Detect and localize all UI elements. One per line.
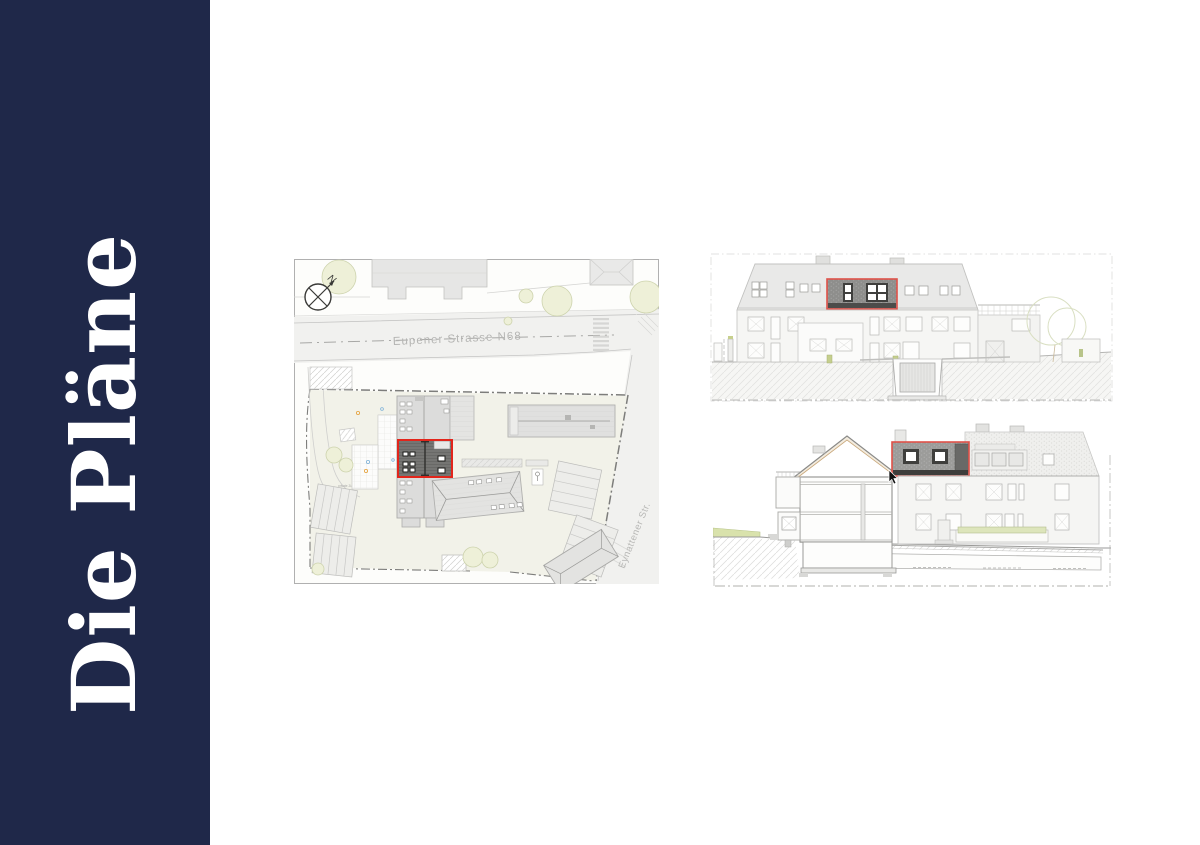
highlighted-unit-front[interactable] [827,279,897,309]
skylights [975,453,1023,466]
highlighted-building-plan[interactable] [398,440,452,477]
site-plan-drawing: private Zufahrt Tiefgarage [294,259,659,584]
bin-shelter [442,555,466,571]
rear-roof [965,424,1099,476]
front-elevation-figure [710,253,1113,403]
section-elevation-figure [713,420,1113,589]
planter [1062,339,1100,362]
section-elevation-drawing [713,420,1113,589]
terrace-planting [958,527,1046,533]
green-door [827,355,832,363]
rear-facade [898,476,1099,544]
south-building [432,472,524,521]
east-building [508,405,615,437]
left-gate [714,336,733,361]
slide: Die Pläne [0,0,1200,845]
page-title: Die Pläne [52,233,156,715]
front-elevation-drawing [710,253,1113,403]
highlighted-unit-section[interactable] [892,442,969,476]
left-annex [768,472,800,547]
garage-door [900,363,935,392]
site-plan-figure: private Zufahrt Tiefgarage [294,259,659,584]
street-parking-strip [310,367,352,389]
sidebar: Die Pläne [0,0,210,845]
facade [737,310,978,364]
